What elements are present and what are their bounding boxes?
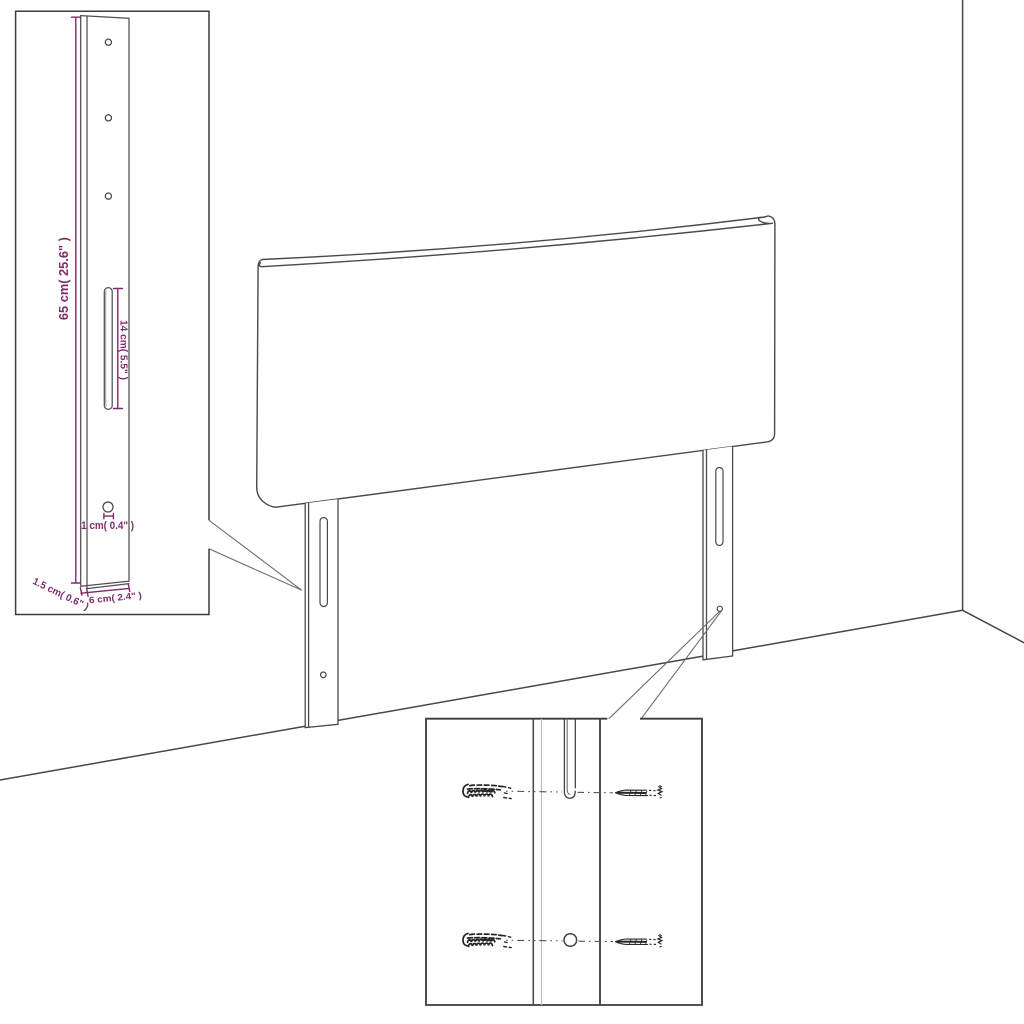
svg-text:65 cm( 25.6" ): 65 cm( 25.6" ): [56, 237, 71, 320]
svg-text:1 cm( 0.4" ): 1 cm( 0.4" ): [81, 520, 134, 532]
svg-text:14 cm( 5.5" ): 14 cm( 5.5" ): [118, 320, 129, 380]
